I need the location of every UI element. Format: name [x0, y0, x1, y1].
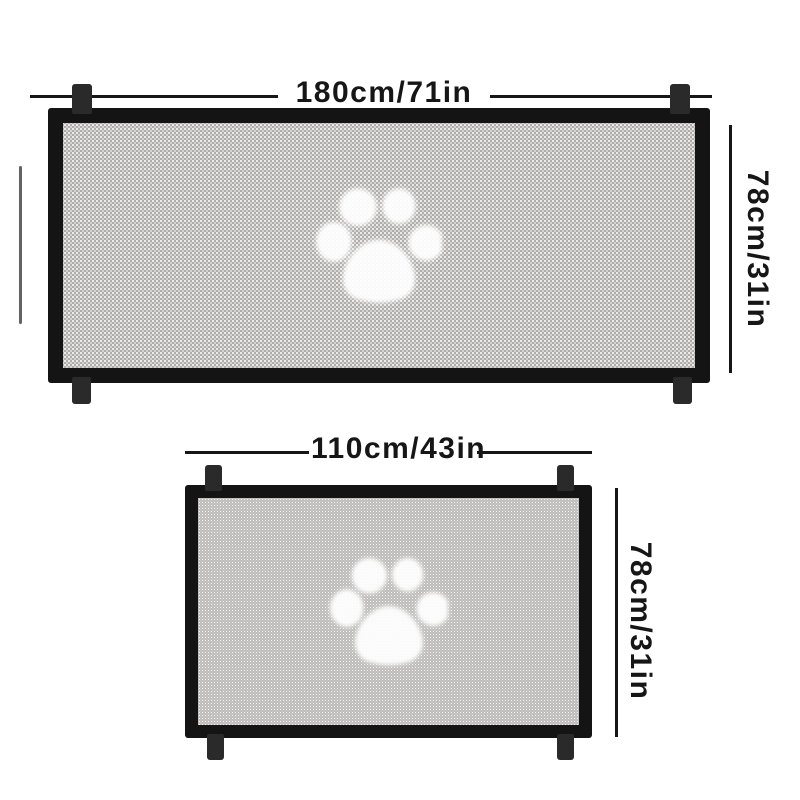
mounting-tab [673, 377, 692, 404]
large-gate-mesh [63, 123, 695, 368]
mounting-tab [72, 84, 92, 114]
width-dimension-line-right [477, 451, 592, 454]
width-dimension-label: 180cm/71in [278, 78, 490, 108]
small-gate-frame [185, 485, 592, 738]
left-edge-line [19, 166, 22, 324]
mounting-tab [557, 734, 574, 760]
mounting-tab [557, 465, 574, 491]
height-dimension-label: 78cm/31in [625, 542, 655, 701]
mounting-tab [205, 465, 222, 491]
width-dimension-line-left [30, 95, 278, 98]
paw-print-icon [316, 187, 442, 305]
paw-print-icon [330, 557, 448, 667]
width-dimension-line-left [185, 451, 309, 454]
height-dimension-line [615, 488, 618, 737]
mounting-tab [207, 734, 224, 760]
small-gate-mesh [198, 498, 579, 725]
mounting-tab [72, 377, 91, 404]
height-dimension-label: 78cm/31in [742, 170, 772, 329]
height-dimension-line [729, 125, 732, 373]
mounting-tab [670, 84, 690, 114]
large-gate-frame [48, 108, 710, 383]
width-dimension-label: 110cm/43in [311, 434, 475, 464]
product-dimension-image: 180cm/71in 78cm/31in [0, 0, 800, 800]
